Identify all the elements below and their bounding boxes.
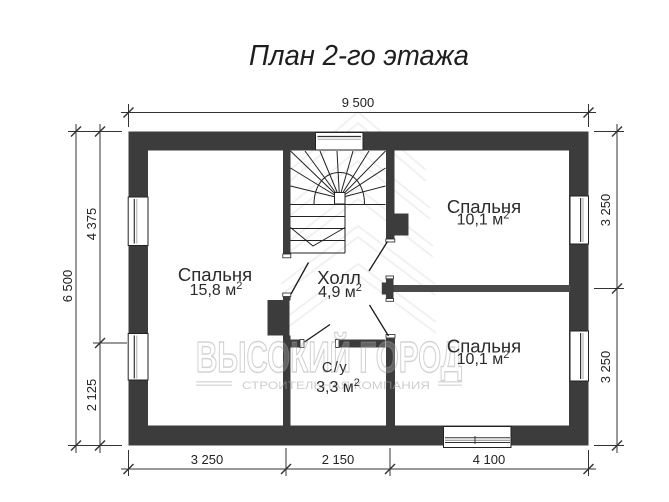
- svg-text:4,9 м2: 4,9 м2: [318, 282, 362, 301]
- svg-text:15,8 м2: 15,8 м2: [190, 280, 243, 299]
- svg-text:С/у: С/у: [322, 360, 348, 376]
- svg-text:4 100: 4 100: [473, 452, 506, 467]
- svg-text:6 500: 6 500: [60, 270, 75, 303]
- svg-text:2 125: 2 125: [84, 379, 99, 412]
- svg-text:2 150: 2 150: [322, 452, 355, 467]
- svg-text:3 250: 3 250: [598, 194, 613, 227]
- svg-text:4 375: 4 375: [84, 208, 99, 241]
- svg-text:3 250: 3 250: [191, 452, 224, 467]
- svg-text:10,1 м2: 10,1 м2: [457, 349, 510, 368]
- svg-text:3 250: 3 250: [598, 351, 613, 384]
- svg-text:10,1 м2: 10,1 м2: [457, 210, 510, 229]
- svg-text:9 500: 9 500: [342, 95, 375, 110]
- svg-text:План 2-го этажа: План 2-го этажа: [249, 40, 469, 72]
- svg-text:3,3 м2: 3,3 м2: [316, 377, 360, 396]
